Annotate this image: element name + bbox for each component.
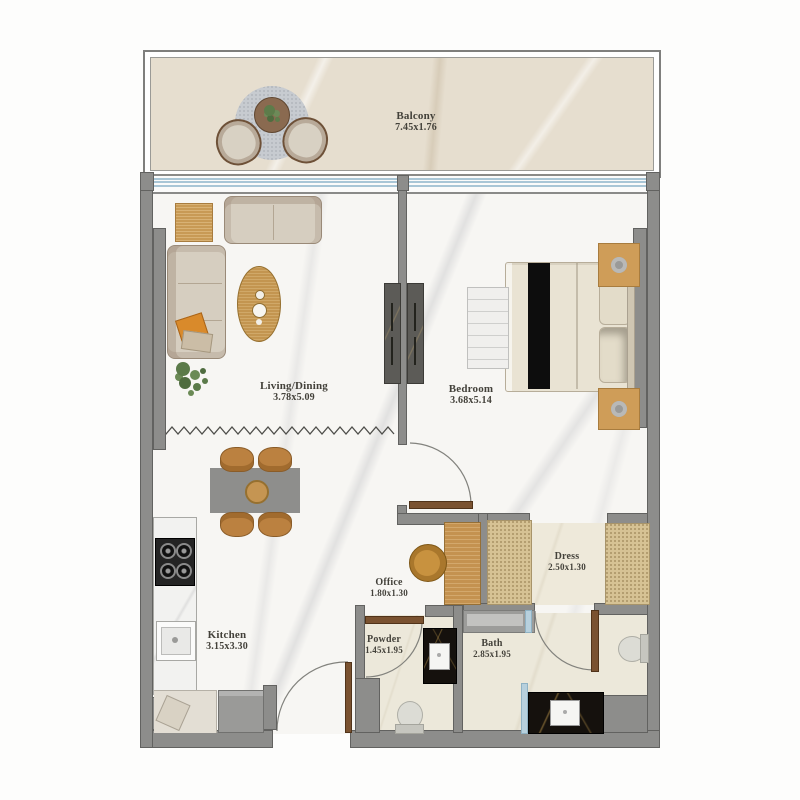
room-name: Living/Dining bbox=[260, 380, 328, 392]
dining-chair bbox=[258, 512, 292, 537]
wall-powder-left-wide bbox=[355, 678, 380, 733]
living-plant bbox=[176, 362, 190, 376]
bath-shower-shelf-inner bbox=[467, 614, 523, 626]
stove-burner bbox=[176, 563, 192, 579]
tv-panel-bedroom bbox=[407, 283, 424, 384]
room-name: Bath bbox=[473, 638, 511, 649]
table-decor-dot bbox=[255, 290, 265, 300]
balcony-plant bbox=[264, 105, 275, 116]
window-post-right bbox=[646, 172, 660, 191]
powder-sink-drain bbox=[437, 653, 441, 657]
room-name: Balcony bbox=[395, 110, 437, 122]
washing-machine bbox=[218, 690, 264, 733]
wardrobe-right bbox=[605, 523, 650, 605]
stove bbox=[155, 538, 195, 586]
room-label-living-dining: Living/Dining 3.78x5.09 bbox=[260, 380, 328, 404]
entry-door-leaf bbox=[345, 662, 352, 733]
wall-corner-block-br bbox=[600, 695, 648, 733]
stove-burner bbox=[160, 563, 176, 579]
bed-sheet-fold bbox=[576, 263, 578, 389]
stove-burner bbox=[176, 543, 192, 559]
tv-panel-living bbox=[384, 283, 401, 384]
kitchen-counter-corner bbox=[154, 690, 217, 733]
shower-glass-bottom bbox=[521, 683, 528, 734]
bath-sink-drain bbox=[563, 710, 567, 714]
nightstand-top bbox=[598, 243, 640, 287]
room-name: Dress bbox=[548, 551, 586, 562]
bath-vanity bbox=[528, 692, 604, 734]
tv-handle bbox=[391, 337, 393, 365]
room-dims: 1.45x1.95 bbox=[365, 645, 403, 656]
nightstand-bottom bbox=[598, 388, 640, 430]
room-label-powder: Powder 1.45x1.95 bbox=[365, 634, 403, 656]
window-post-left bbox=[140, 172, 154, 191]
bedroom-door-leaf bbox=[409, 501, 473, 509]
table-decor-bowl bbox=[252, 303, 267, 318]
office-desk bbox=[444, 522, 481, 605]
dining-chair bbox=[258, 447, 292, 472]
nightstand-lamp bbox=[611, 401, 627, 417]
bed-runner bbox=[528, 263, 550, 389]
sofa-pillow-beige bbox=[181, 330, 213, 353]
room-name: Office bbox=[370, 577, 408, 588]
room-dims: 7.45x1.76 bbox=[395, 122, 437, 134]
bath-toilet-tank bbox=[640, 634, 649, 663]
loveseat-sofa bbox=[224, 196, 322, 244]
dining-chair bbox=[220, 447, 254, 472]
room-dims: 3.15x3.30 bbox=[206, 641, 248, 653]
coffee-table-oval bbox=[237, 266, 281, 342]
room-dims: 2.50x1.30 bbox=[548, 562, 586, 573]
wall-entry-jamb bbox=[263, 685, 277, 730]
wardrobe-left bbox=[487, 520, 532, 605]
room-dims: 3.78x5.09 bbox=[260, 392, 328, 404]
powder-door-leaf bbox=[365, 616, 424, 624]
tv-handle bbox=[391, 303, 393, 331]
wall-left-column bbox=[153, 228, 166, 450]
room-dims: 1.80x1.30 bbox=[370, 588, 408, 599]
floor-plan-canvas: Balcony 7.45x1.76 Living/Dining 3.78x5.0… bbox=[0, 0, 800, 800]
room-dims: 2.85x1.95 bbox=[473, 649, 511, 660]
room-label-dress: Dress 2.50x1.30 bbox=[548, 551, 586, 573]
powder-vanity bbox=[423, 628, 457, 684]
dining-chair bbox=[220, 512, 254, 537]
stove-burner bbox=[160, 543, 176, 559]
wall-left bbox=[140, 190, 153, 748]
room-name: Bedroom bbox=[449, 383, 494, 395]
powder-toilet-tank bbox=[395, 724, 424, 734]
living-rug bbox=[175, 203, 213, 242]
tv-handle bbox=[414, 337, 416, 365]
room-label-kitchen: Kitchen 3.15x3.30 bbox=[206, 629, 248, 653]
tv-handle bbox=[414, 303, 416, 331]
counter-towel bbox=[155, 695, 190, 731]
sink-faucet bbox=[172, 637, 178, 643]
table-decor-dot bbox=[256, 319, 262, 325]
bath-sink bbox=[550, 700, 580, 726]
nightstand-lamp bbox=[611, 257, 627, 273]
living-sofa bbox=[167, 245, 226, 359]
room-label-balcony: Balcony 7.45x1.76 bbox=[395, 110, 437, 134]
kitchen-sink bbox=[156, 621, 196, 661]
room-name: Powder bbox=[365, 634, 403, 645]
office-chair-seat bbox=[414, 550, 440, 576]
room-name: Kitchen bbox=[206, 629, 248, 641]
room-label-office: Office 1.80x1.30 bbox=[370, 577, 408, 599]
bed-bench bbox=[467, 287, 509, 369]
room-label-bedroom: Bedroom 3.68x5.14 bbox=[449, 383, 494, 407]
room-label-bath: Bath 2.85x1.95 bbox=[473, 638, 511, 660]
bath-door-leaf bbox=[591, 610, 599, 672]
wall-right bbox=[647, 190, 660, 748]
room-dims: 3.68x5.14 bbox=[449, 395, 494, 407]
window-post-middle bbox=[397, 175, 409, 191]
sofa-cushion-split bbox=[178, 283, 222, 284]
dining-centerpiece bbox=[245, 480, 269, 504]
powder-sink bbox=[429, 643, 450, 670]
shower-glass-top bbox=[525, 610, 532, 633]
loveseat-cushion-split bbox=[273, 205, 274, 240]
office-chair bbox=[409, 544, 447, 582]
